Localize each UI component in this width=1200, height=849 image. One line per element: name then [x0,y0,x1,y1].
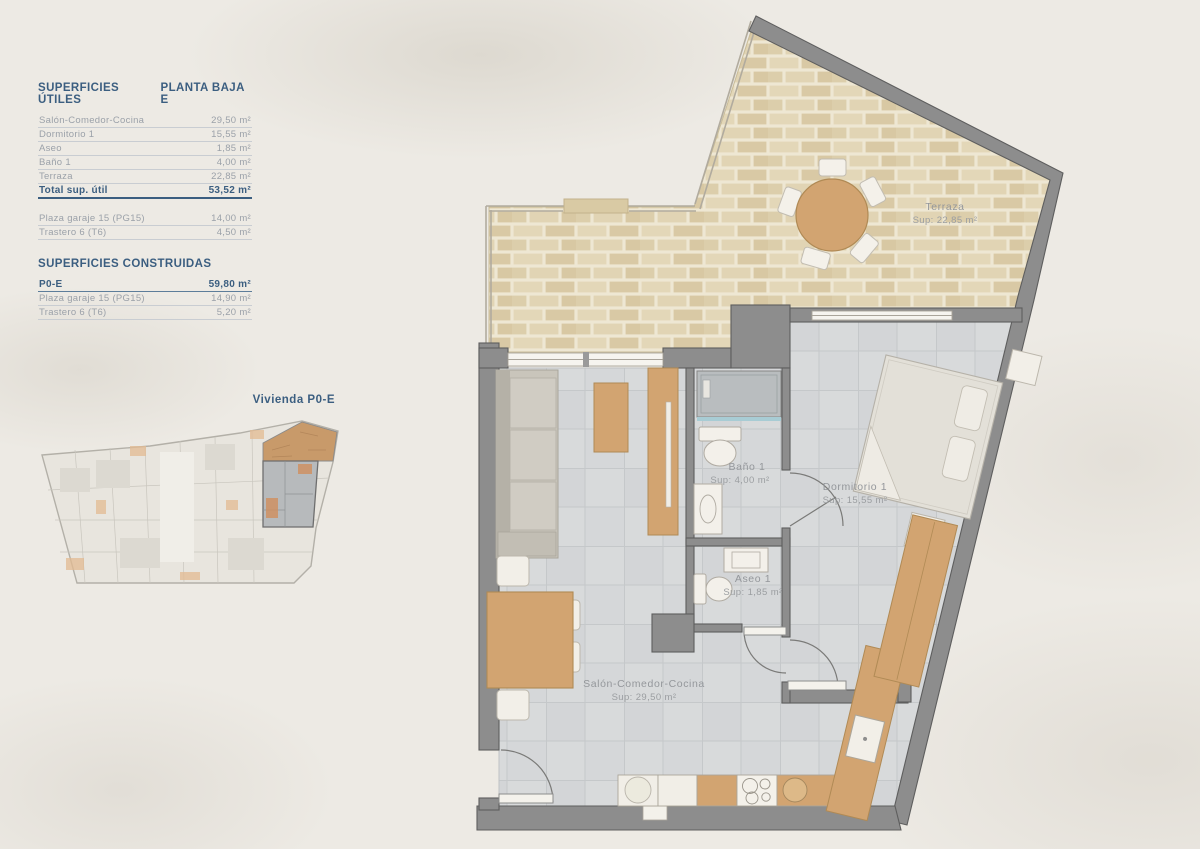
dining-chair [497,556,529,586]
label-terraza: Terraza [925,201,964,213]
kitchen-counter-bottom [618,775,862,806]
wall-living-top-right [663,348,731,368]
wall-shower-corner [731,305,790,368]
shower-glass [697,417,781,421]
terrace-planter [564,199,628,213]
wall-bath-aseo-divider [686,538,790,546]
floorplan-canvas: Terraza Sup: 22,85 m² Dormitorio 1 Sup: … [0,0,1200,849]
dining-table [487,592,573,688]
washbasin [724,548,768,572]
label-dormitorio-sup: Sup: 15,55 m² [823,495,888,506]
round-table [796,179,868,251]
kitchen-bowl [783,778,807,802]
bedroom-window [812,311,952,320]
label-terraza-sup: Sup: 22,85 m² [913,215,978,226]
living-window [508,352,663,367]
entry-threshold [643,806,667,820]
label-salon-sup: Sup: 29,50 m² [612,692,677,703]
nightstand [1006,349,1042,385]
coffee-table [594,383,628,452]
label-salon: Salón-Comedor-Cocina [583,678,705,690]
wall-bath-right-upper [782,368,790,470]
kitchen-cabinet [658,775,697,806]
tv-cabinet [648,368,678,535]
terrace-floor [489,22,1060,352]
kitchen-counter-wood [697,775,737,806]
wall-aseo-corner-chunk [652,614,694,652]
wall-bath-left [686,368,694,630]
label-aseo: Aseo 1 [735,573,771,585]
label-bano: Baño 1 [729,461,766,473]
washbasin [694,484,722,534]
page: { "panel": { "title": "SUPERFICIES ÚTILE… [0,0,1200,849]
label-bano-sup: Sup: 4,00 m² [710,475,769,486]
label-dormitorio: Dormitorio 1 [823,481,887,493]
wall-aseo-right [782,528,790,637]
main-floorplan: Terraza Sup: 22,85 m² Dormitorio 1 Sup: … [477,16,1063,830]
wall-living-top-left [479,348,508,368]
label-aseo-sup: Sup: 1,85 m² [723,587,782,598]
perimeter-wall-left-stub [479,798,499,810]
sofa [496,370,558,558]
overview-miniplan [42,421,338,583]
dining-chair [497,690,529,720]
